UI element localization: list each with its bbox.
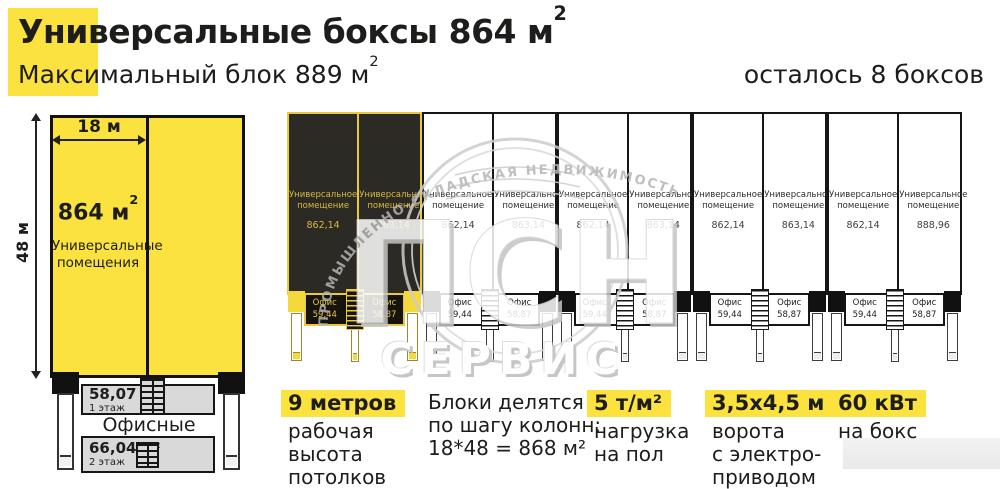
column-leg — [291, 313, 302, 361]
unit-label: Универсальноепомещение — [424, 190, 492, 212]
column-leg — [696, 313, 707, 361]
office-cell: Офис58,87 — [906, 298, 944, 320]
unit-label: Универсальноепомещение — [764, 190, 832, 212]
unit-label: Универсальноепомещение — [694, 190, 762, 212]
width-dimension-label: 18 м — [55, 117, 143, 137]
width-dimension-arrow — [58, 139, 140, 141]
warehouse-unit: Универсальноепомещение 863,14 — [359, 114, 427, 293]
office-cell: Офис58,87 — [501, 298, 539, 320]
column-leg — [621, 328, 629, 362]
warehouse-unit: Универсальноепомещение 863,14 — [494, 114, 562, 293]
stairs-icon — [346, 289, 364, 330]
unit-label: Универсальноепомещение — [559, 190, 627, 212]
stairs-icon — [481, 289, 499, 330]
feature-list: 9 метров рабочаявысотапотолков Блоки дел… — [0, 390, 1000, 489]
page-subtitle-text: Максимальный блок 889 м — [18, 60, 369, 89]
feature-highlight: 9 метров — [281, 390, 405, 417]
plan-area-sup: 2 — [129, 193, 138, 208]
warehouse-pair: Универсальноепомещение 862,14 Универсаль… — [692, 112, 827, 359]
page-title-sup: 2 — [553, 2, 566, 25]
pair-body: Универсальноепомещение 862,14 Универсаль… — [692, 112, 827, 295]
stairs-icon — [616, 289, 634, 330]
page-subtitle: Максимальный блок 889 м2 — [18, 60, 379, 89]
feature-item: Блоки делятсяпо шагу колонн:18*48 = 868 … — [428, 390, 601, 461]
page-title: Универсальные боксы 864 м2 — [18, 12, 566, 51]
column-pillar — [288, 291, 305, 312]
warehouse-unit: Универсальноепомещение 863,14 — [764, 114, 832, 293]
unit-label: Универсальноепомещение — [829, 190, 897, 212]
feature-highlight: 5 т/м² — [587, 390, 671, 417]
column-leg — [947, 313, 958, 361]
column-pillar — [558, 291, 575, 312]
plan-area-value: 864 м2 — [52, 200, 144, 225]
warehouse-unit: Универсальноепомещение 862,14 — [424, 114, 494, 293]
office-cell: Офис58,87 — [771, 298, 809, 320]
page-title-text: Универсальные боксы 864 м — [18, 12, 553, 51]
column-leg — [756, 328, 764, 362]
feature-lines: на бокс — [838, 420, 926, 443]
warehouse-unit: Универсальноепомещение 862,14 — [289, 114, 359, 293]
office-cell: Офис58,87 — [636, 298, 674, 320]
office-cell: Офис58,87 — [366, 298, 404, 320]
unit-label: Универсальноепомещение — [289, 190, 357, 212]
column-pillar — [423, 291, 440, 312]
column-leg — [486, 328, 494, 362]
unit-area-value: 862,14 — [559, 220, 627, 231]
unit-area-value: 862,14 — [289, 220, 357, 231]
unit-area-value: 863,14 — [764, 220, 832, 231]
unit-label: Универсальноепомещение — [359, 190, 427, 212]
stairs-icon — [886, 289, 904, 330]
warehouse-unit: Универсальноепомещение 862,14 — [829, 114, 899, 293]
feature-text-line: 18*48 = 868 м² — [428, 437, 601, 460]
unit-area-value: 863,14 — [359, 220, 427, 231]
feature-text-line: на пол — [594, 443, 689, 466]
feature-text-line: на бокс — [838, 420, 926, 443]
feature-text-line: с электро- — [712, 443, 833, 466]
feature-text-line: приводом — [712, 466, 833, 489]
feature-text-line: ворота — [712, 420, 833, 443]
pair-body: Универсальноепомещение 862,14 Универсаль… — [557, 112, 692, 295]
column-leg — [542, 313, 553, 361]
unit-label: Универсальноепомещение — [494, 190, 562, 212]
column-leg — [561, 313, 572, 361]
office-cell: Офис59,44 — [441, 298, 479, 320]
column-leg — [812, 313, 823, 361]
column-leg — [407, 313, 418, 361]
plan-area-caption: Универсальные помещения — [52, 238, 144, 272]
page-subtitle-sup: 2 — [369, 54, 378, 70]
column-pillar — [809, 291, 826, 312]
warehouse-unit: Универсальноепомещение 863,14 — [629, 114, 697, 293]
office-cell: Офис59,44 — [576, 298, 614, 320]
boxes-remaining-label: осталось 8 боксов — [744, 60, 984, 89]
feature-lines: нагрузкана пол — [594, 420, 689, 466]
unit-label: Универсальноепомещение — [629, 190, 697, 212]
unit-area-value: 888,96 — [899, 220, 967, 231]
feature-text-line: потолков — [288, 466, 405, 489]
stairs-icon — [751, 289, 769, 330]
slide-universal-boxes: Универсальные боксы 864 м2 Максимальный … — [0, 0, 1000, 489]
column-leg — [677, 313, 688, 361]
warehouse-pair: Универсальноепомещение 862,14 Универсаль… — [422, 112, 557, 359]
unit-area-value: 863,14 — [494, 220, 562, 231]
warehouse-pair: Универсальноепомещение 862,14 Универсаль… — [287, 112, 422, 359]
feature-lines: воротас электро-приводом — [712, 420, 833, 489]
feature-item: 60 кВт на бокс — [838, 390, 926, 443]
warehouse-unit: Универсальноепомещение 862,14 — [559, 114, 629, 293]
column-leg — [891, 328, 899, 362]
pair-body: Универсальноепомещение 862,14 Универсаль… — [287, 112, 422, 295]
warehouse-unit: Универсальноепомещение 888,96 — [899, 114, 967, 293]
feature-item: 3,5х4,5 м воротас электро-приводом — [712, 390, 833, 489]
office-cell: Офис59,44 — [846, 298, 884, 320]
unit-area-value: 862,14 — [829, 220, 897, 231]
unit-area-value: 863,14 — [629, 220, 697, 231]
unit-area-value: 862,14 — [424, 220, 492, 231]
feature-lines: рабочаявысотапотолков — [288, 420, 405, 489]
feature-item: 9 метров рабочаявысотапотолков — [288, 390, 405, 489]
office-cell: Офис59,44 — [711, 298, 749, 320]
column-leg — [426, 313, 437, 361]
office-cell: Офис59,44 — [306, 298, 344, 320]
feature-lines: Блоки делятсяпо шагу колонн:18*48 = 868 … — [428, 391, 601, 461]
feature-item: 5 т/м² нагрузкана пол — [594, 390, 689, 466]
column-pillar — [944, 291, 961, 312]
feature-highlight: 60 кВт — [831, 390, 926, 417]
height-dimension-arrow — [35, 119, 37, 373]
feature-text-line: нагрузка — [594, 420, 689, 443]
feature-text-line: по шагу колонн: — [428, 414, 601, 437]
column-pillar — [674, 291, 691, 312]
height-dimension-label: 48 м — [13, 222, 32, 263]
feature-text-line: Блоки делятся — [428, 391, 601, 414]
column-pillar — [404, 291, 421, 312]
pair-body: Универсальноепомещение 862,14 Универсаль… — [827, 112, 962, 295]
pair-body: Универсальноепомещение 862,14 Универсаль… — [422, 112, 557, 295]
warehouse-pair: Универсальноепомещение 862,14 Универсаль… — [557, 112, 692, 359]
warehouse-unit: Универсальноепомещение 862,14 — [694, 114, 764, 293]
plan-area-text: 864 м — [58, 200, 130, 225]
column-leg — [351, 328, 359, 362]
unit-area-value: 862,14 — [694, 220, 762, 231]
feature-text-line: рабочая — [288, 420, 405, 443]
warehouse-pair: Универсальноепомещение 862,14 Универсаль… — [827, 112, 962, 359]
feature-text-line: высота — [288, 443, 405, 466]
feature-highlight: 3,5х4,5 м — [705, 390, 833, 417]
column-pillar — [828, 291, 845, 312]
column-pillar — [539, 291, 556, 312]
column-pillar — [693, 291, 710, 312]
column-leg — [831, 313, 842, 361]
warehouse-box-row: Универсальноепомещение 862,14 Универсаль… — [287, 112, 962, 359]
unit-label: Универсальноепомещение — [899, 190, 967, 212]
